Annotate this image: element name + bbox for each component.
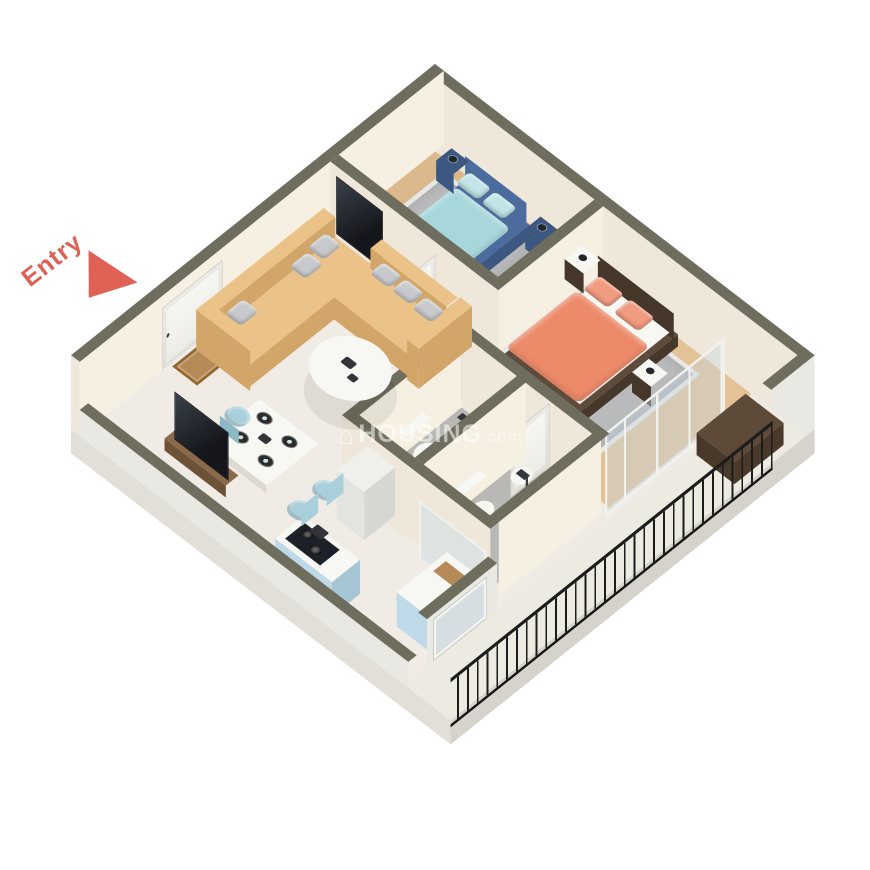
- lamp: [536, 223, 548, 233]
- plate: [256, 453, 276, 469]
- lamp: [447, 154, 459, 164]
- sofa-short-arm-front: [407, 340, 419, 389]
- floorplan-3d-render: Entry ⌂HOUSING.com: [0, 0, 870, 870]
- entry-label: Entry: [16, 228, 88, 293]
- house-icon: ⌂: [338, 420, 355, 450]
- lamp: [577, 253, 589, 263]
- watermark: ⌂HOUSING.com: [338, 420, 578, 451]
- entry-marker: Entry: [16, 230, 136, 340]
- wall-northwest-endcap: [71, 355, 80, 436]
- lamp: [644, 366, 656, 376]
- table-decor: [340, 356, 357, 369]
- centerpiece: [257, 433, 272, 445]
- plate: [255, 410, 275, 426]
- watermark-suffix: .com: [482, 427, 523, 446]
- burner: [307, 543, 324, 556]
- plate: [279, 434, 299, 450]
- table-decor: [346, 373, 359, 383]
- watermark-text: HOUSING: [358, 420, 482, 448]
- entry-arrow-icon: [84, 249, 141, 302]
